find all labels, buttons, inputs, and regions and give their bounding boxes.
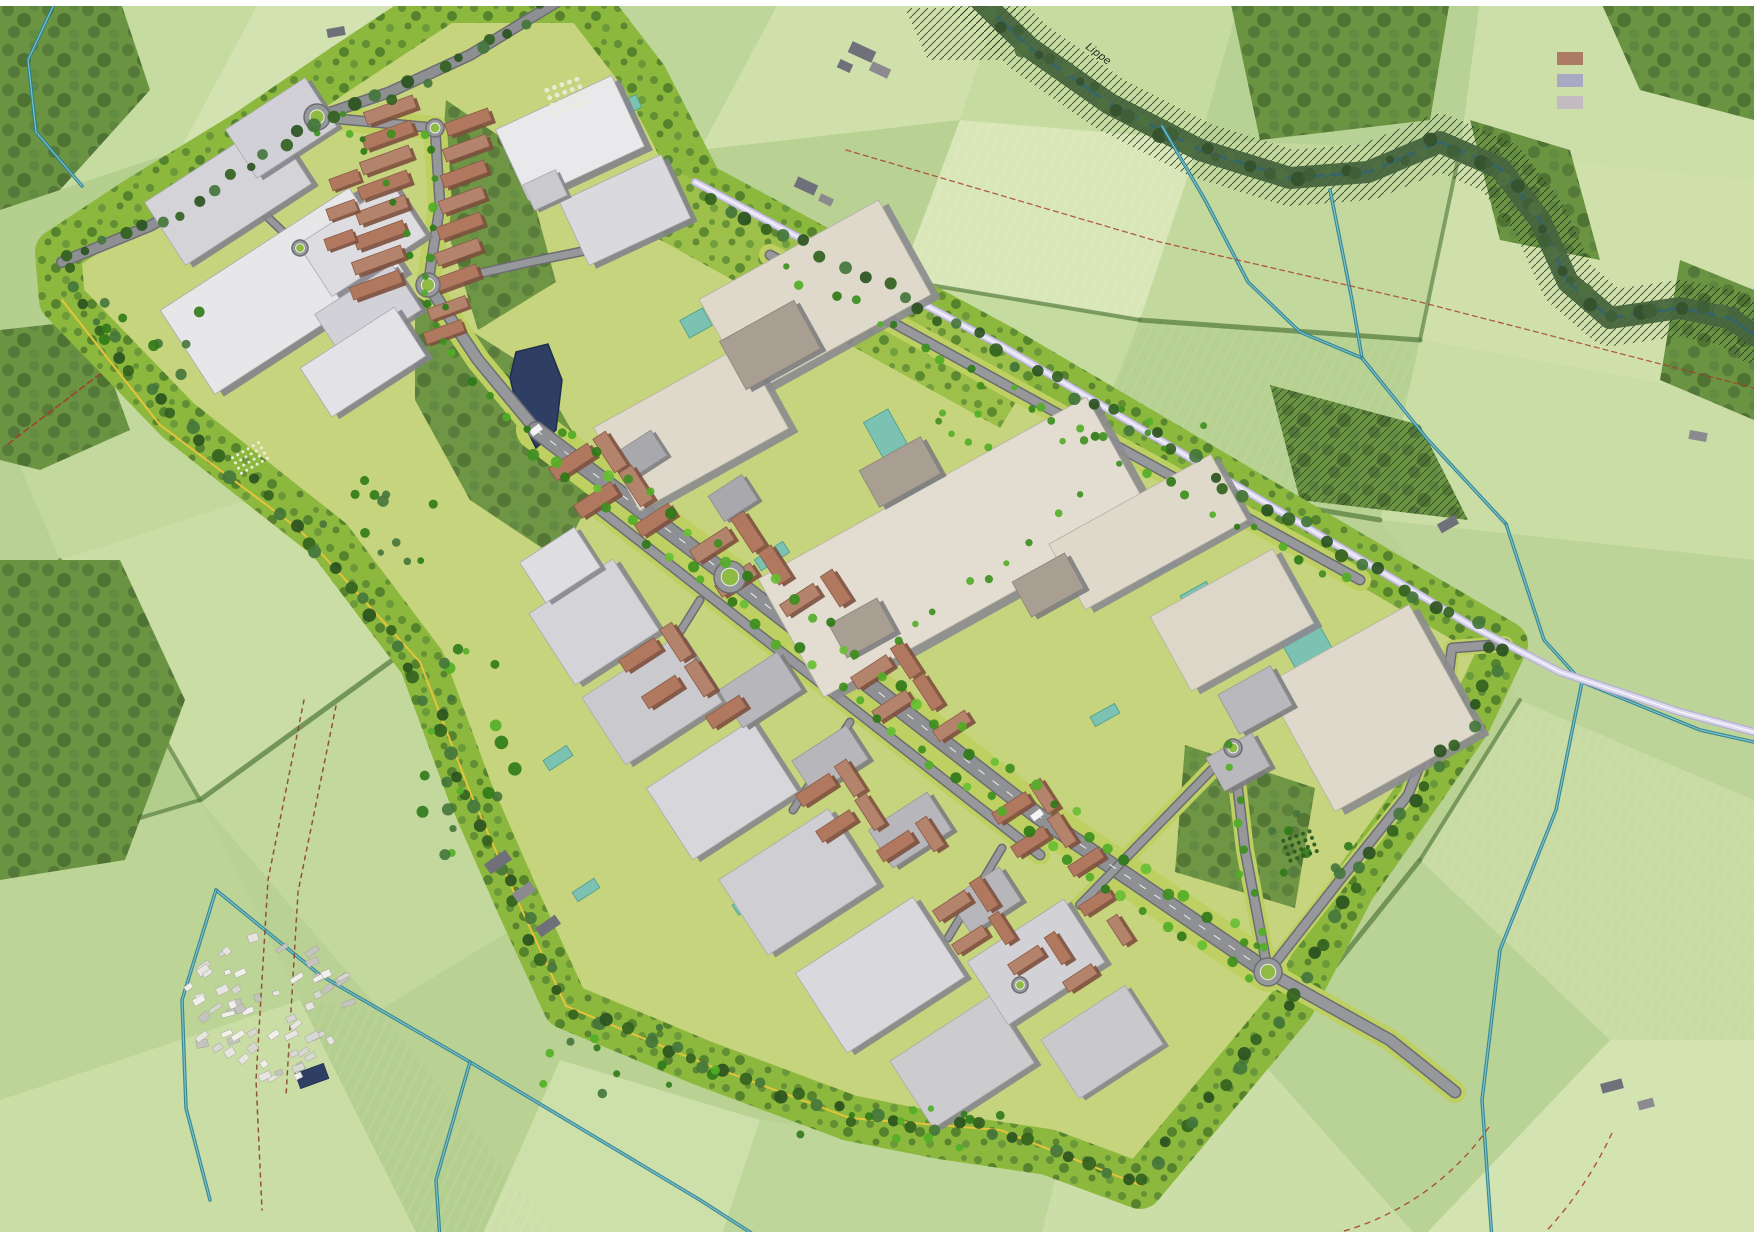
masterplan-map: Lippe xyxy=(0,0,1754,1240)
map-canvas: Lippe xyxy=(0,0,1754,1240)
legend-swatch-brown xyxy=(1557,52,1583,65)
legend-swatch-lavender xyxy=(1557,74,1583,87)
legend-swatch-gray xyxy=(1557,96,1583,109)
map-legend xyxy=(1557,52,1583,109)
